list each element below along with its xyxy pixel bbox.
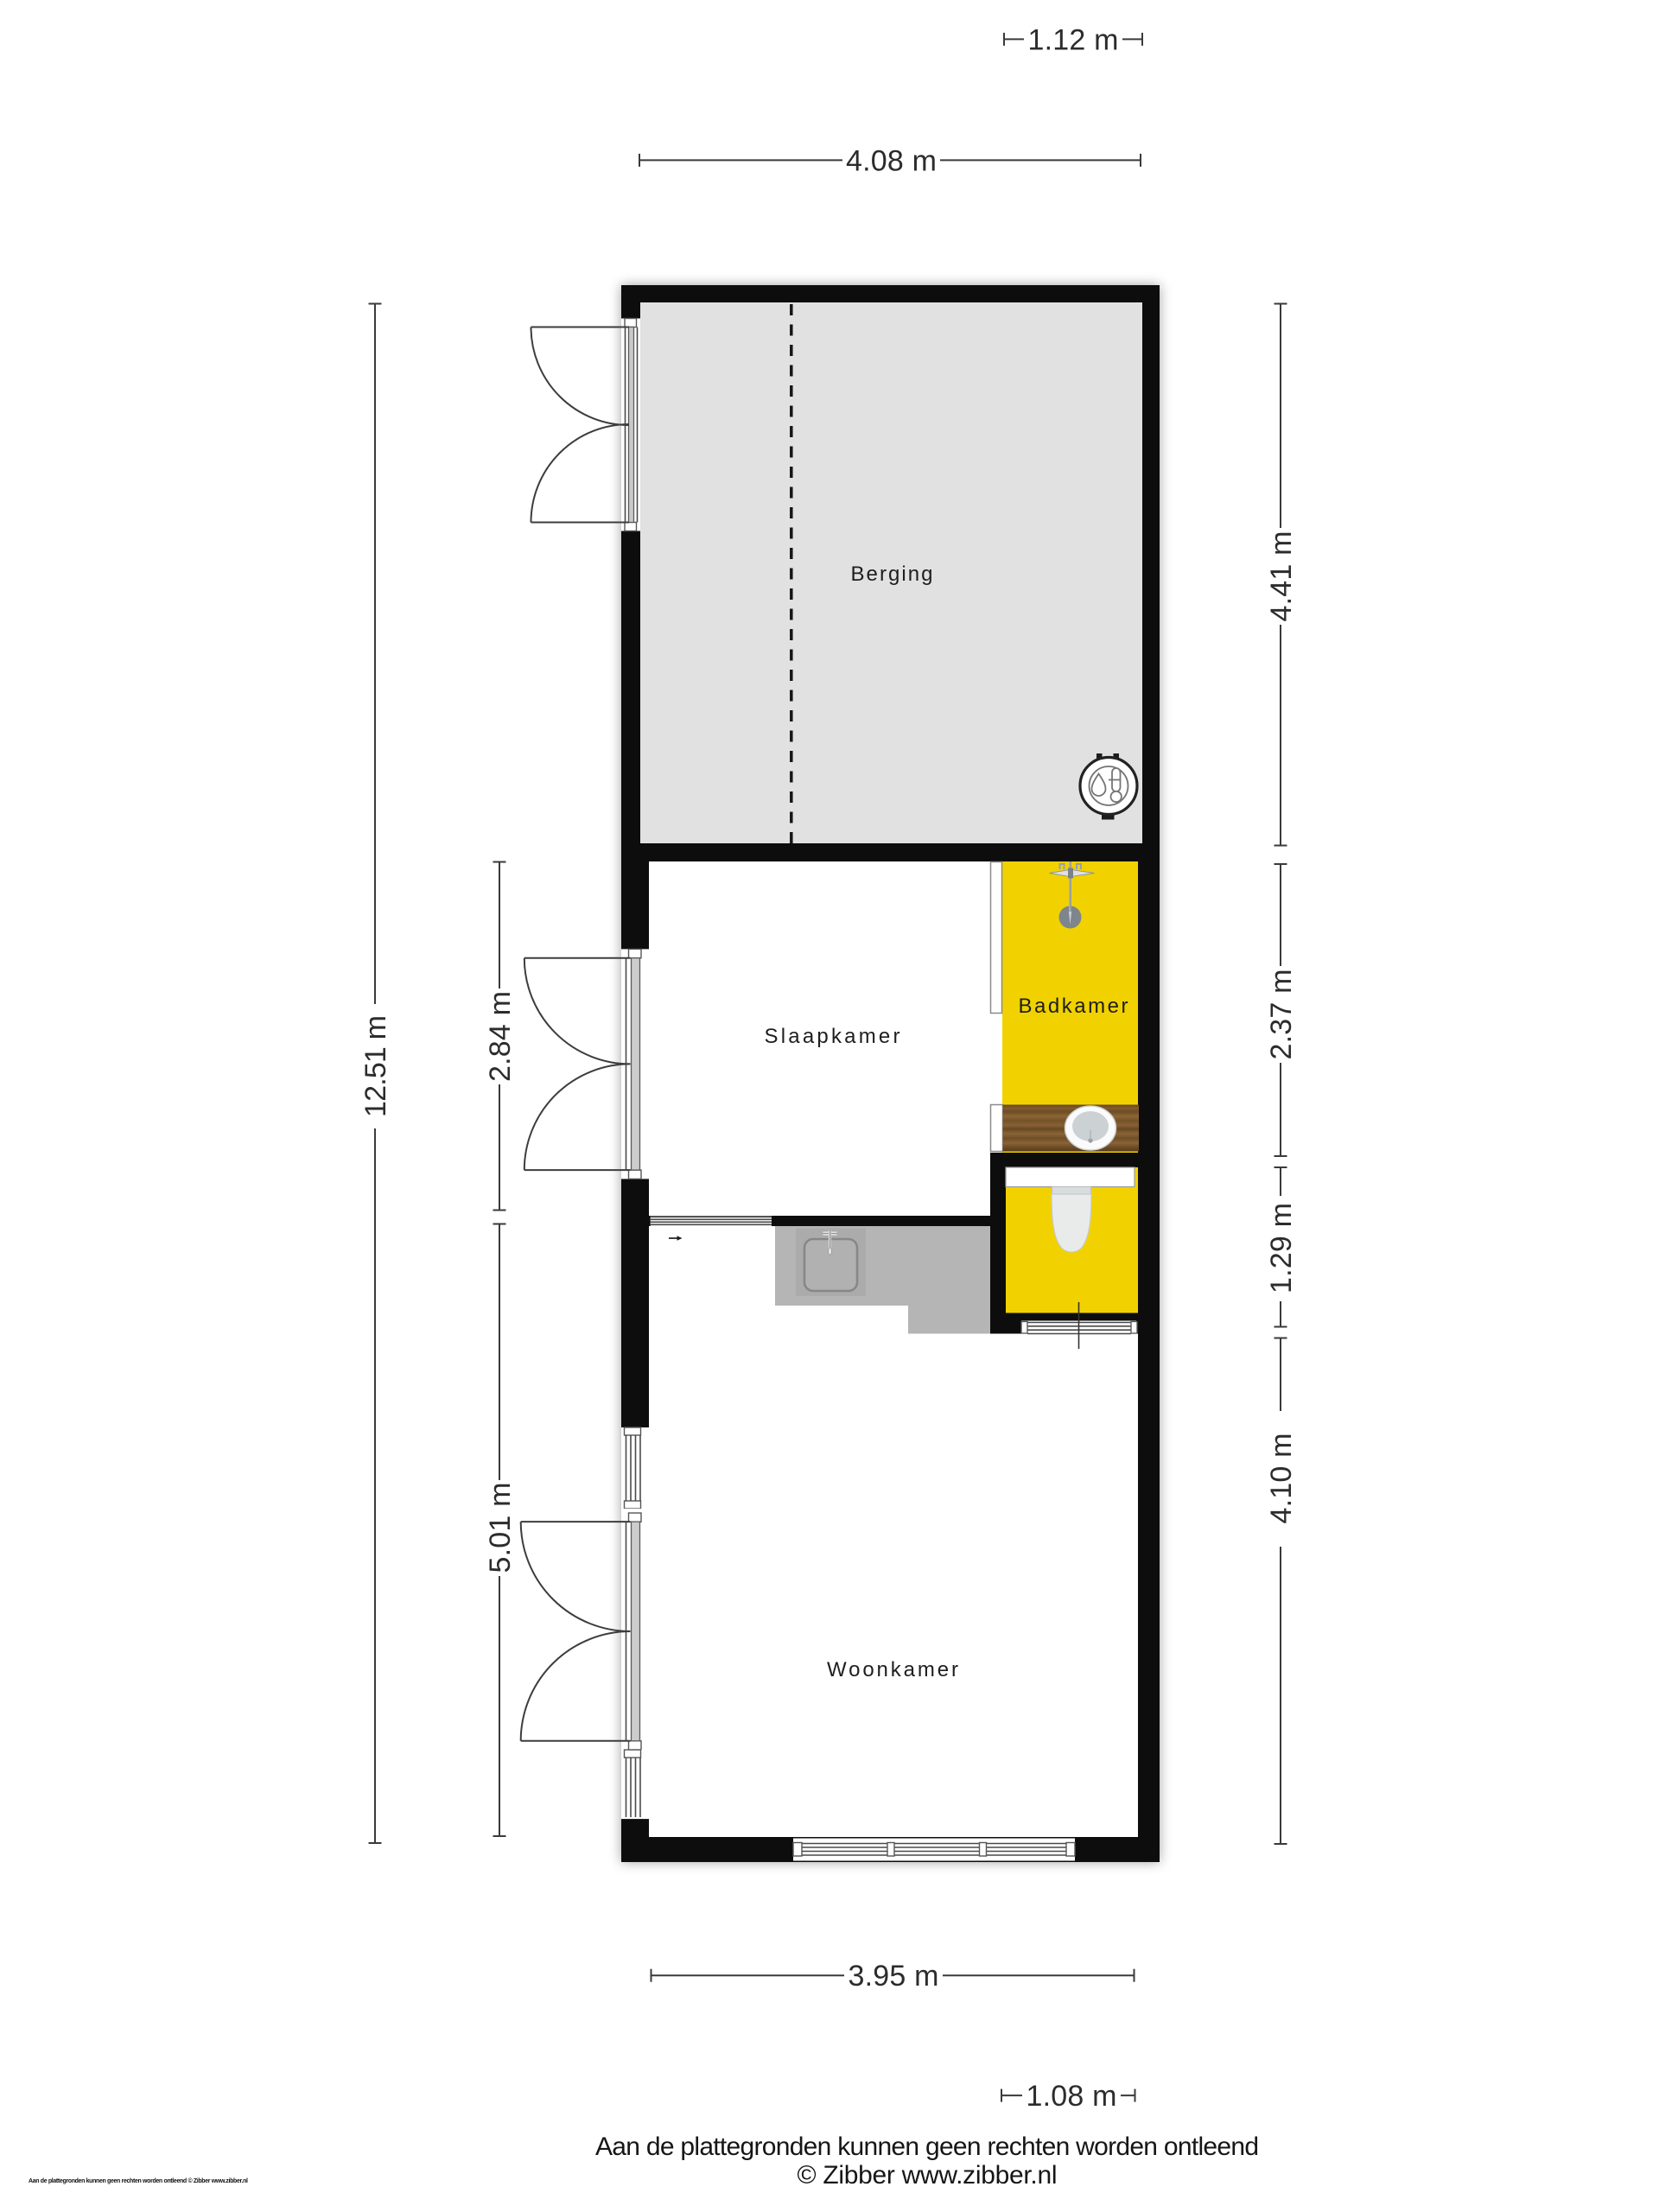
svg-text:Aan de plattegronden kunnen ge: Aan de plattegronden kunnen geen rechten… — [29, 2177, 248, 2184]
svg-text:1.08 m: 1.08 m — [1027, 2080, 1117, 2113]
svg-text:4.10 m: 4.10 m — [1265, 1433, 1298, 1524]
svg-text:3.95 m: 3.95 m — [849, 1960, 939, 1993]
svg-text:Slaapkamer: Slaapkamer — [765, 1025, 900, 1048]
svg-text:4.08 m: 4.08 m — [846, 144, 937, 177]
svg-text:5.01 m: 5.01 m — [484, 1483, 517, 1573]
svg-text:© Zibber www.zibber.nl: © Zibber www.zibber.nl — [798, 2161, 1058, 2190]
svg-text:1.12 m: 1.12 m — [1028, 23, 1119, 56]
svg-text:Berging: Berging — [851, 563, 933, 586]
svg-text:1.29 m: 1.29 m — [1265, 1203, 1298, 1294]
svg-text:2.84 m: 2.84 m — [484, 991, 517, 1082]
svg-text:Aan de plattegronden kunnen ge: Aan de plattegronden kunnen geen rechten… — [595, 2133, 1259, 2161]
svg-text:4.41 m: 4.41 m — [1265, 531, 1298, 622]
svg-text:12.51 m: 12.51 m — [359, 1015, 392, 1117]
svg-text:2.37 m: 2.37 m — [1265, 969, 1298, 1060]
